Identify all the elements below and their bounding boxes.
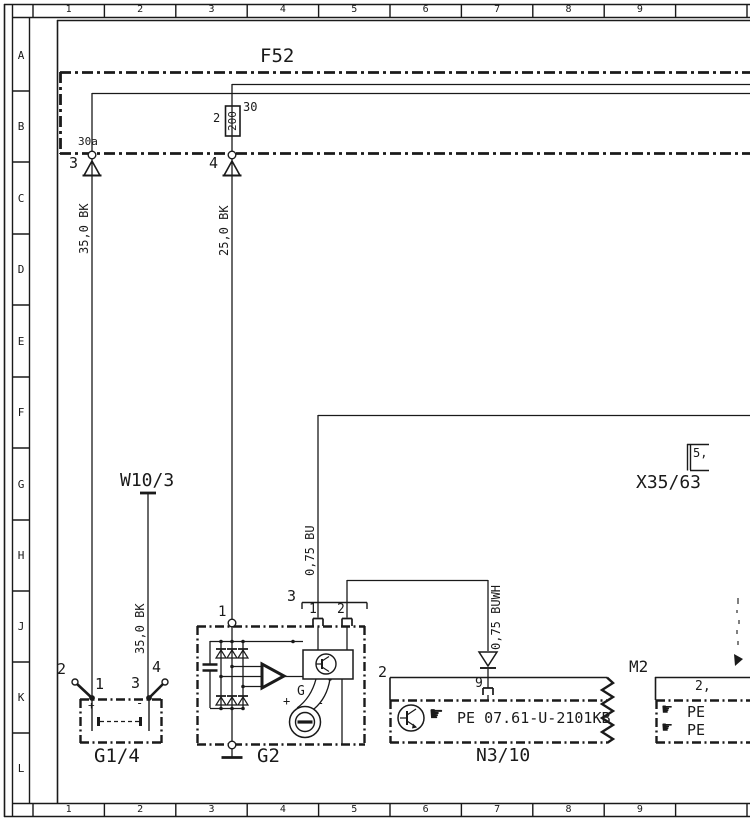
m2-component-label: M2 [629,659,648,675]
bottom-ruler-col-2: 2 [137,805,143,815]
left-ruler-row-g: G [15,479,27,490]
wire-label-left-feed: 35,0 BK [78,203,90,254]
edge-arrow-icon [734,654,743,666]
fuse-terminal-30-label: 30 [243,101,257,113]
terminal-30a-label: 30a [78,136,98,147]
plug-4-label: 4 [209,156,218,171]
g2-pin1-label: 1 [309,603,317,616]
wire-label-ground-wire: 35,0 BK [134,603,146,654]
g2-plus-label: + [283,695,290,707]
bottom-ruler-col-4: 4 [280,805,286,815]
diode-icon [479,652,497,668]
left-ruler-row-b: B [15,121,27,132]
ruler-frame [12,4,750,817]
left-ruler-row-f: F [15,407,27,418]
battery-clamp-terminals [72,679,168,700]
plug-3-label: 3 [69,156,78,171]
battery-pin4-label: 4 [152,660,161,675]
m2-row2-label: PE [687,723,705,738]
top-ruler-col-2: 2 [137,5,143,15]
power-bus-wires [92,84,750,152]
edge-clipped-marks [737,598,739,645]
alternator-box [197,626,365,745]
f52-component-label: F52 [260,47,294,66]
left-ruler-row-a: A [15,50,27,61]
wiring-diagram-page: 1 2 3 4 5 6 7 8 9 1 2 3 4 5 6 7 8 9 A B … [0,0,750,820]
w10-3-label: W10/3 [120,472,174,490]
left-ruler-row-d: D [15,264,27,275]
n3-component-label: N3/10 [476,747,530,765]
pointing-hand-icon: ☛ [662,720,672,737]
bottom-ruler-col-9: 9 [637,805,643,815]
bottom-ruler-col-5: 5 [351,805,357,815]
outer-frame [4,4,750,817]
bottom-ruler-col-3: 3 [208,805,214,815]
regulator-icon [303,650,353,679]
g2-pin2-label: 2 [337,603,345,616]
wire-label-mid-feed: 25,0 BK [218,205,230,256]
n3-transistor-icon [398,705,424,731]
battery-plus-label: + [88,700,95,711]
x35-63-detail-label: 5, [693,447,707,459]
top-ruler-col-7: 7 [494,5,500,15]
n3-pin9-label: 9 [475,677,483,690]
left-ruler-row-k: K [15,692,27,703]
top-ruler-col-6: 6 [423,5,429,15]
n3-pin2-label: 2 [378,665,387,680]
bottom-ruler-col-1: 1 [66,805,72,815]
top-ruler-col-1: 1 [66,5,72,15]
top-ruler-col-3: 3 [208,5,214,15]
m2-row1-label: PE [687,705,705,720]
bottom-ruler-col-8: 8 [565,805,571,815]
top-ruler-col-5: 5 [351,5,357,15]
battery-component-label: G1/4 [94,747,140,766]
g2-minus-label: - [317,697,324,709]
battery-pin1-label: 1 [95,677,104,692]
main-wires [92,159,750,757]
schematic-lines [0,0,750,820]
g2-top-pin-label: 1 [218,605,226,619]
battery-minus-label: - [136,697,143,709]
pointing-hand-icon: ☛ [662,702,672,719]
bottom-ruler-col-7: 7 [494,805,500,815]
stator-winding-icon [262,664,284,688]
g2-generator-letter: G [297,685,305,698]
top-ruler-col-4: 4 [280,5,286,15]
left-ruler-row-l: L [15,763,27,774]
left-ruler-row-c: C [15,193,27,204]
fuse-pin-label: 2 [213,112,220,124]
top-ruler-col-9: 9 [637,5,643,15]
x35-63-label: X35/63 [636,474,701,492]
wire-label-bu: 0,75 BU [304,525,316,576]
bottom-ruler-col-6: 6 [423,805,429,815]
left-ruler-row-h: H [15,550,27,561]
terminal-circles [88,151,236,749]
top-ruler-col-8: 8 [565,5,571,15]
fuse-rating-label: 200 [227,111,238,131]
left-ruler-row-e: E [15,336,27,347]
battery-pin2-label: 2 [57,662,66,677]
n3-doc-ref: PE 07.61-U-2101KB [457,711,611,726]
left-ruler-row-j: J [15,621,27,632]
generator-icon [290,707,321,738]
wire-label-buwh: 0,75 BUWH [490,585,502,650]
pointing-hand-icon: ☛ [430,704,443,725]
g2-connector-3-label: 3 [287,589,296,604]
g2-component-label: G2 [257,747,280,766]
m2-pin-label: 2, [695,680,711,693]
battery-pin3-label: 3 [131,676,140,691]
